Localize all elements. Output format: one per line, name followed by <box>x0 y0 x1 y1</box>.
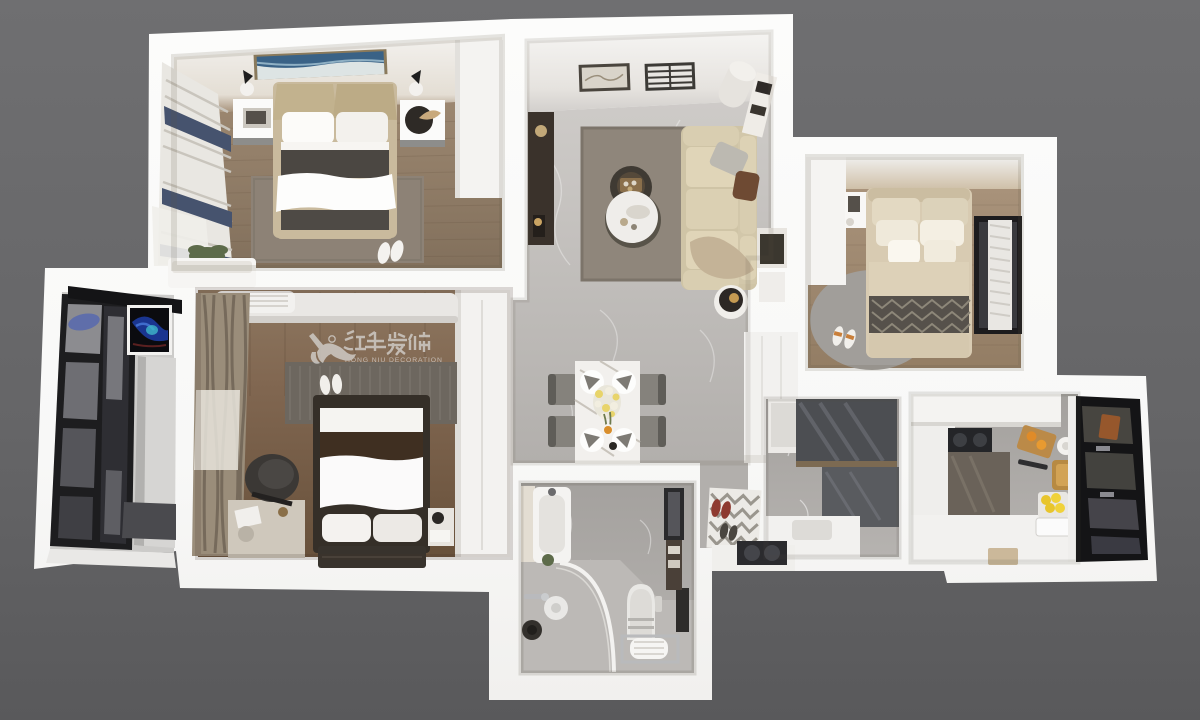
svg-text:HONG NIU DECORATION: HONG NIU DECORATION <box>345 357 443 364</box>
